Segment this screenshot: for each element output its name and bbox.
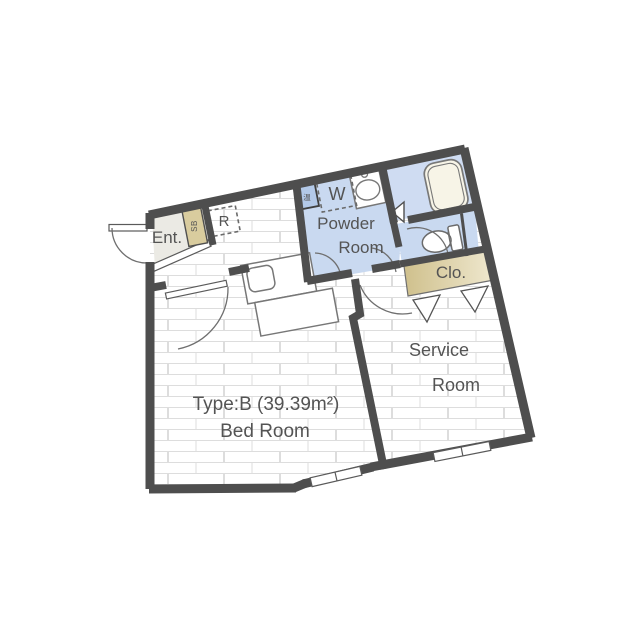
refrigerator-label: R <box>219 213 230 230</box>
shoe-box-label: SB <box>190 220 199 232</box>
wall-bedroom-bottom <box>149 488 296 489</box>
water-heater-label: 温 <box>303 193 311 202</box>
washer-label: W <box>329 184 346 204</box>
service-room-label-line2: Room <box>432 375 480 395</box>
bedroom-label: Bed Room <box>220 421 310 442</box>
floorplan-image: Ent. SB R W 温 Powder Room Clo. Service R… <box>0 0 640 640</box>
closet-label: Clo. <box>436 263 466 282</box>
powder-room-label-line1: Powder <box>317 214 375 233</box>
service-room-label-line1: Service <box>409 340 469 360</box>
entrance-door-leaf <box>109 225 147 232</box>
wall-powder-south-b <box>372 264 400 269</box>
floor-plan-canvas: Ent. SB R W 温 Powder Room Clo. Service R… <box>0 0 640 640</box>
wall-bedroom-north-b <box>229 268 249 272</box>
bedroom-type-label: Type:B (39.39m²) <box>193 394 340 415</box>
kitchen-sink-icon <box>246 264 276 292</box>
entrance-label: Ent. <box>152 228 182 247</box>
wall-bedroom-north-a <box>150 285 166 288</box>
entrance-door-arc <box>112 228 147 263</box>
powder-room-label-line2: Room <box>338 238 383 257</box>
